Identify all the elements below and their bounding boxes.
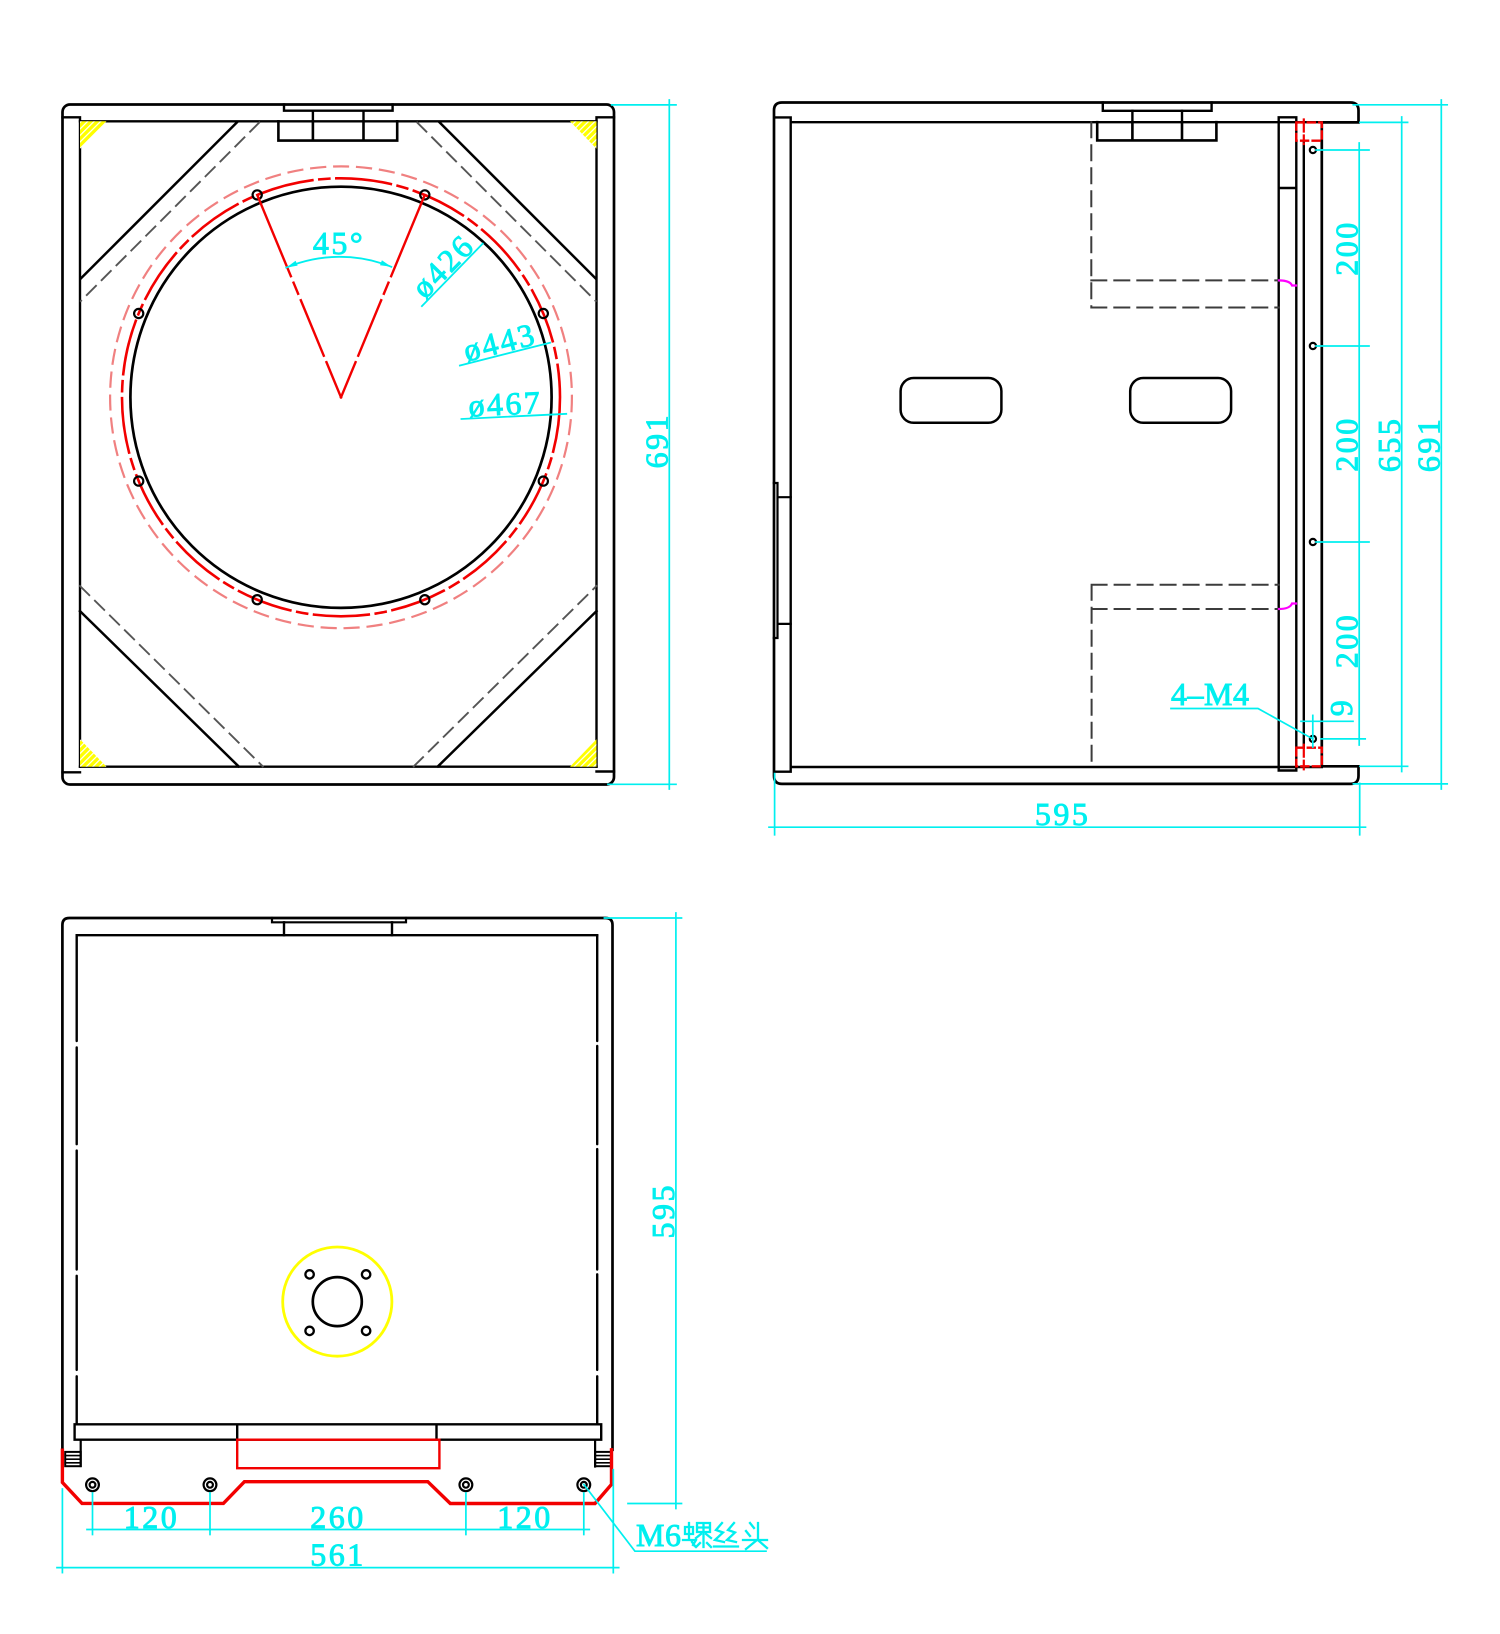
svg-text:45°: 45° [313, 225, 365, 261]
svg-text:595: 595 [1035, 796, 1091, 832]
svg-text:120: 120 [497, 1499, 553, 1535]
svg-text:561: 561 [310, 1537, 366, 1573]
svg-text:4–M4: 4–M4 [1171, 676, 1249, 712]
svg-text:200: 200 [1329, 220, 1365, 276]
svg-text:200: 200 [1329, 613, 1365, 669]
svg-text:691: 691 [1411, 417, 1447, 473]
svg-text:200: 200 [1329, 416, 1365, 472]
svg-text:260: 260 [310, 1499, 366, 1535]
svg-text:120: 120 [124, 1499, 180, 1535]
svg-text:691: 691 [638, 413, 674, 469]
svg-text:655: 655 [1371, 417, 1407, 473]
svg-text:9: 9 [1323, 698, 1359, 717]
svg-text:M6: M6 [636, 1517, 681, 1553]
svg-text:595: 595 [645, 1183, 681, 1239]
